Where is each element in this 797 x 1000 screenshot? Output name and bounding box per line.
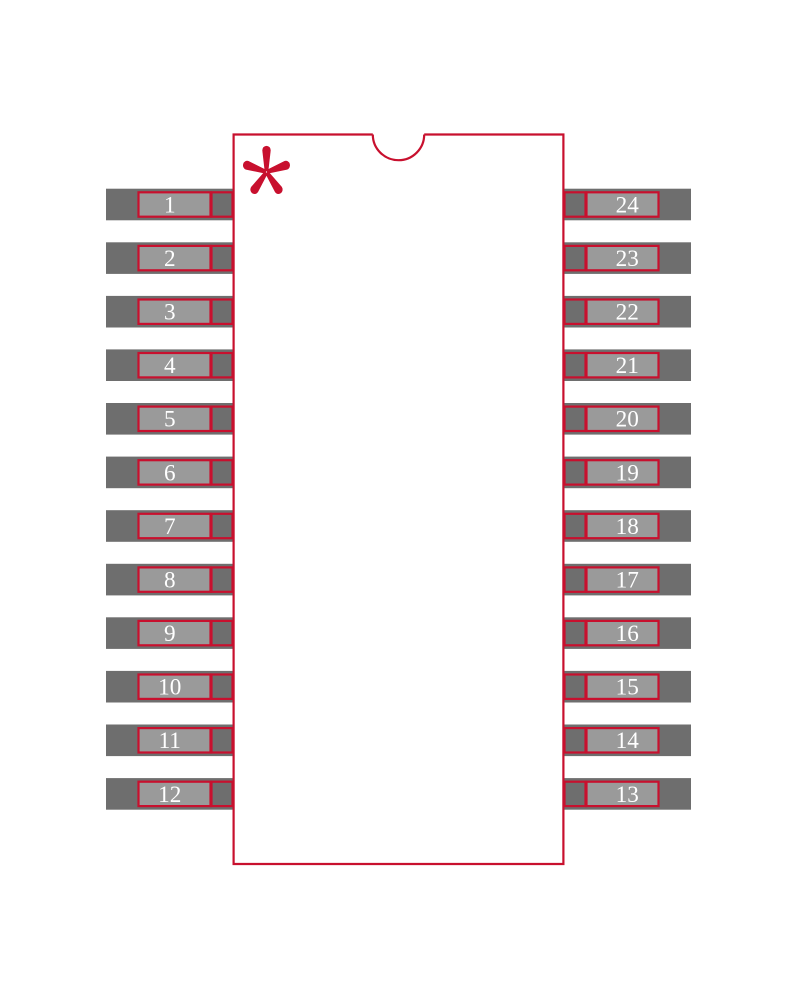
svg-text:2: 2 — [164, 246, 176, 272]
svg-text:8: 8 — [164, 568, 176, 594]
svg-text:17: 17 — [616, 568, 639, 594]
svg-text:15: 15 — [616, 675, 639, 701]
svg-text:13: 13 — [616, 782, 639, 808]
svg-text:11: 11 — [159, 728, 181, 754]
svg-text:14: 14 — [616, 728, 640, 754]
svg-text:6: 6 — [164, 460, 176, 486]
svg-text:7: 7 — [164, 514, 176, 540]
svg-text:1: 1 — [164, 192, 176, 218]
svg-text:9: 9 — [164, 621, 176, 647]
svg-text:24: 24 — [616, 192, 640, 218]
svg-text:23: 23 — [616, 246, 639, 272]
svg-text:22: 22 — [616, 300, 639, 326]
svg-text:5: 5 — [164, 407, 176, 433]
svg-text:4: 4 — [164, 353, 176, 379]
svg-text:21: 21 — [616, 353, 639, 379]
svg-text:19: 19 — [616, 460, 639, 486]
svg-text:3: 3 — [164, 300, 176, 326]
svg-text:12: 12 — [158, 782, 181, 808]
svg-text:10: 10 — [158, 675, 181, 701]
svg-text:20: 20 — [616, 407, 639, 433]
svg-text:18: 18 — [616, 514, 639, 540]
svg-text:16: 16 — [616, 621, 639, 647]
